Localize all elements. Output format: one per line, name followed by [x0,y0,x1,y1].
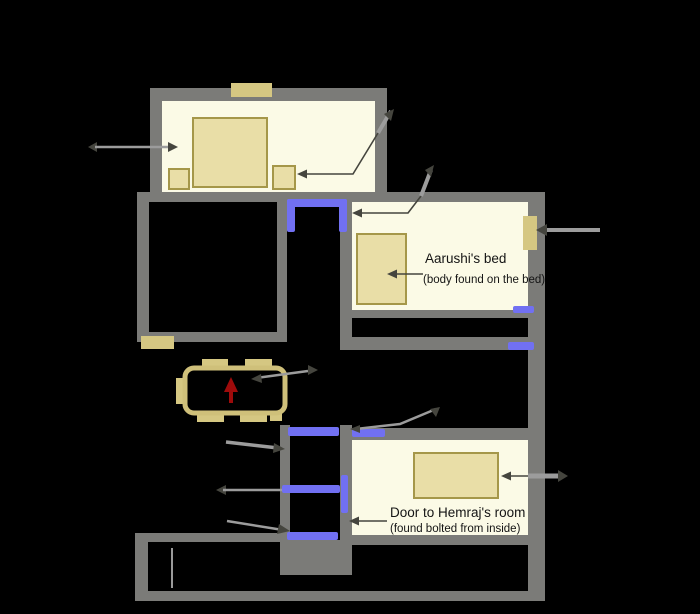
aarushi-bed-sublabel: (body found on the bed) [423,274,545,286]
leader-top-bedroom-arrow [168,142,178,152]
annotation-overlay [0,0,700,614]
leader-corridor-top-line [226,442,278,448]
leader-nightstand-arrow [297,170,307,179]
leader-corridor-bottom-arrow [277,524,290,534]
leader-aarushi-door-arrow [352,209,362,218]
leader-aarushi-bed-arrow [387,270,397,279]
floor-plan-diagram: Aarushi's bed (body found on the bed) Do… [0,0,700,614]
leader-hemraj-door-arrow [349,517,359,526]
leader-aarushi-door-line [355,196,421,213]
leader-hemraj-top-door-arrow [350,425,360,433]
leader-hemraj-bed-arrow [501,472,511,481]
leader-dining-right-mark [308,365,318,375]
leader-hemraj-bed-right-mark [558,470,568,482]
leader-hemraj-top-door-line [356,409,436,429]
aarushi-bed-label: Aarushi's bed [425,251,506,266]
leader-nightstand-line [299,133,378,174]
leader-dining-arrow [251,374,262,383]
leader-corridor-bottom-line [227,521,283,530]
leader-corridor-top-arrow [273,443,285,453]
hemraj-door-sublabel: (found bolted from inside) [390,523,520,535]
leader-aarushi-window-arrow [536,224,547,236]
hemraj-door-label: Door to Hemraj's room [390,505,525,520]
red-arrow-head [224,377,238,392]
